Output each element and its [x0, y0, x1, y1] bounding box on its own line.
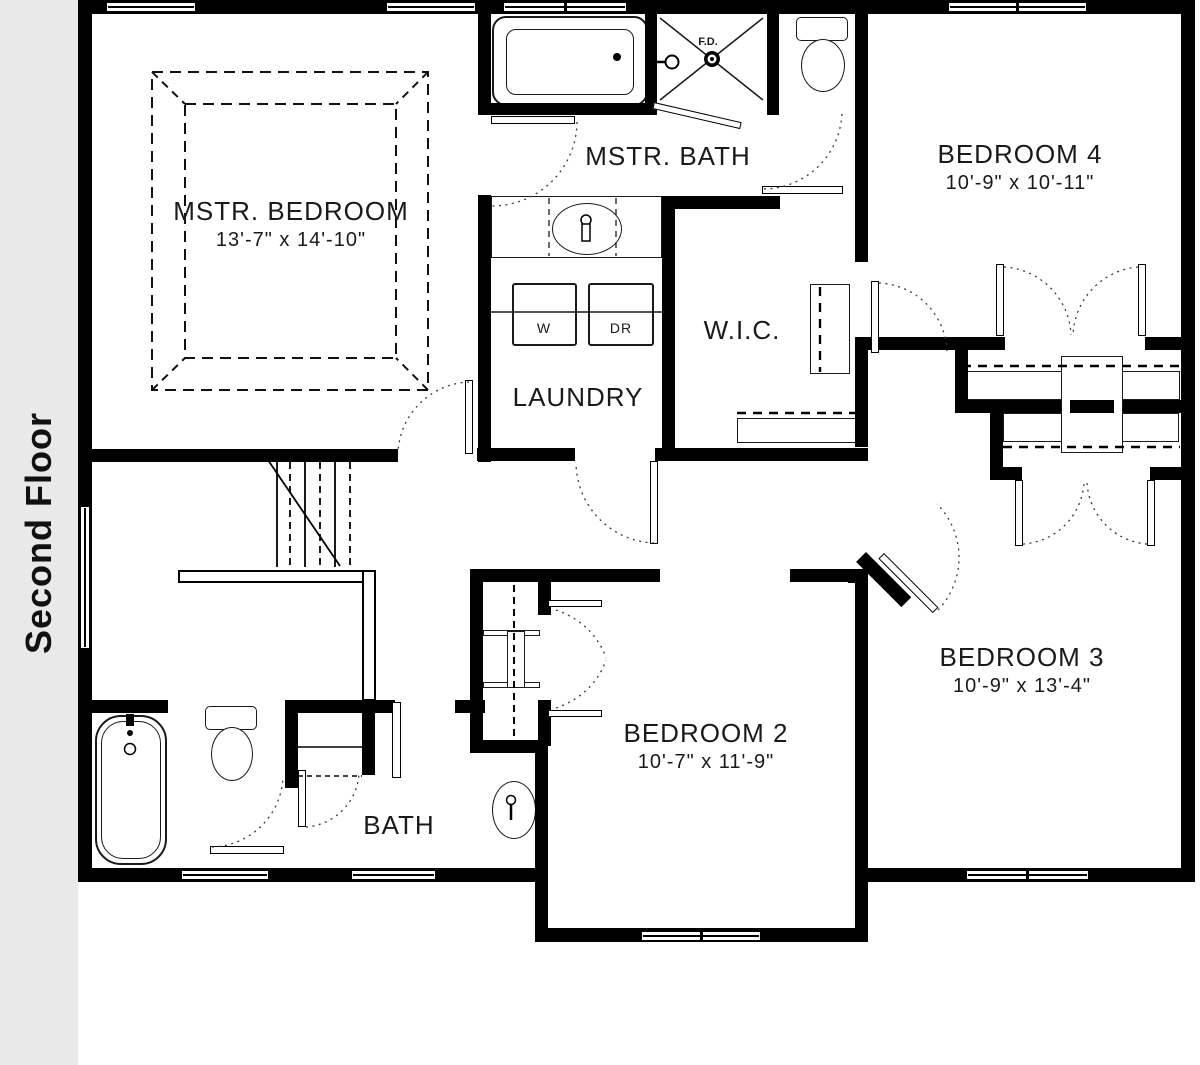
wall [1150, 467, 1182, 480]
wall [535, 740, 548, 868]
room-label-bath: BATH [363, 810, 434, 841]
vanity-sink [552, 203, 622, 255]
toilet-bowl [211, 727, 253, 781]
window [350, 869, 437, 881]
washer [512, 283, 577, 346]
window [947, 1, 1088, 13]
window [965, 869, 1090, 881]
toilet-bowl [801, 39, 845, 92]
closet2-jamb [548, 600, 602, 607]
wall [990, 467, 1022, 480]
wall [478, 195, 491, 462]
toilet-tank [796, 17, 848, 41]
wall [767, 14, 779, 115]
closet2-slide [507, 631, 525, 688]
door-wic [762, 186, 843, 194]
wall [470, 569, 483, 753]
room-label-bedroom2: BEDROOM 2 [623, 718, 788, 749]
room-label-bedroom4: BEDROOM 4 [937, 139, 1102, 170]
pedestal-sink [492, 781, 536, 839]
door-closet3 [1147, 480, 1155, 546]
door-laundry [650, 461, 658, 544]
wall [285, 700, 395, 713]
wic-shelf-right [810, 284, 850, 374]
wall [78, 0, 92, 882]
door-bath-hall [298, 770, 306, 827]
dryer-label: DR [610, 320, 632, 336]
floor-title-strip: Second Floor [0, 0, 78, 1065]
wall [491, 103, 651, 115]
wall [868, 337, 1005, 350]
wall [538, 569, 551, 615]
wall [855, 337, 868, 447]
washer-label: W [537, 320, 551, 336]
wall [85, 449, 398, 462]
closet2-jamb [548, 710, 602, 717]
wall [675, 196, 780, 209]
dryer [588, 283, 654, 346]
wall [478, 14, 491, 115]
wall [285, 700, 298, 788]
room-label-wic: W.I.C. [704, 315, 781, 346]
room-label-master-bedroom: MSTR. BEDROOM [173, 196, 408, 227]
floor-plan: Second Floor [0, 0, 1200, 1065]
opening-jamb [392, 702, 401, 778]
wic-shelf-bottom [737, 418, 857, 443]
door-master-bedroom [465, 380, 473, 454]
wall [662, 196, 675, 460]
wall [470, 569, 660, 582]
room-label-bedroom3: BEDROOM 3 [939, 642, 1104, 673]
window [180, 869, 270, 881]
window [79, 505, 91, 650]
shower-door [652, 102, 741, 129]
garden-tub-inner [506, 29, 634, 95]
floor-drain-label: F.D. [698, 36, 718, 48]
door-closet4 [1138, 264, 1146, 336]
window [105, 1, 197, 13]
door-master-bath [491, 116, 575, 124]
wall [1181, 0, 1195, 882]
wall [477, 448, 575, 461]
room-label-laundry: LAUNDRY [513, 382, 644, 413]
window [385, 1, 477, 13]
door-closet4 [996, 264, 1004, 336]
room-dims-master-bedroom: 13'-7" x 14'-10" [216, 229, 366, 252]
wall [655, 448, 868, 461]
wall [362, 700, 375, 775]
wall [1070, 400, 1114, 413]
wall [855, 868, 868, 942]
room-dims-bedroom4: 10'-9" x 10'-11" [946, 172, 1095, 195]
wall [790, 569, 856, 582]
stair-railing [362, 570, 376, 701]
door-bath [210, 846, 284, 854]
door-bedroom4 [871, 281, 879, 353]
wall [855, 14, 868, 262]
wall [1145, 337, 1182, 350]
window [502, 1, 628, 13]
wall [645, 14, 657, 115]
door-closet3 [1015, 480, 1023, 546]
bathtub-inner [101, 721, 161, 859]
room-dims-bedroom3: 10'-9" x 13'-4" [953, 675, 1091, 698]
window [640, 930, 762, 942]
wall [85, 868, 548, 882]
wall [538, 700, 551, 746]
room-dims-bedroom2: 10'-7" x 11'-9" [638, 751, 775, 774]
floor-title: Second Floor [18, 411, 60, 653]
stair-railing [178, 570, 375, 583]
wall [85, 700, 168, 713]
room-label-master-bath: MSTR. BATH [585, 141, 751, 172]
wall [855, 583, 868, 868]
